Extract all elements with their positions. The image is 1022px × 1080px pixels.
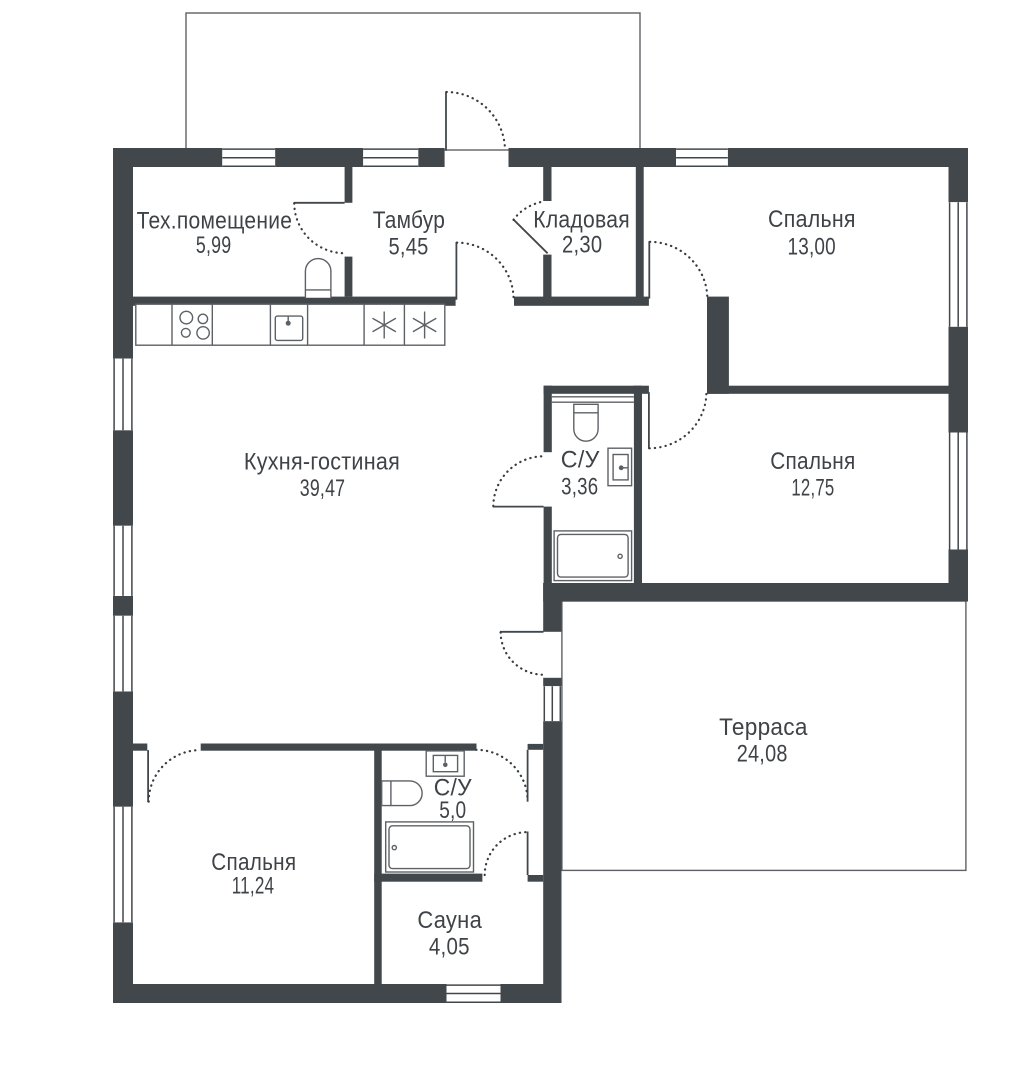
svg-text:Кладовая: Кладовая (533, 207, 630, 234)
svg-text:5,99: 5,99 (196, 232, 232, 259)
svg-text:39,47: 39,47 (300, 475, 346, 502)
svg-text:24,08: 24,08 (737, 740, 788, 767)
svg-text:Тамбур: Тамбур (373, 207, 445, 234)
svg-text:5,45: 5,45 (388, 233, 428, 260)
svg-text:Тех.помещение: Тех.помещение (137, 207, 293, 234)
svg-text:Спальня: Спальня (768, 206, 856, 233)
svg-text:С/У: С/У (561, 447, 600, 474)
svg-text:3,36: 3,36 (561, 473, 598, 500)
svg-text:2,30: 2,30 (562, 232, 602, 259)
svg-text:Кухня-гостиная: Кухня-гостиная (244, 449, 400, 476)
svg-text:12,75: 12,75 (791, 475, 834, 502)
svg-text:Сауна: Сауна (417, 907, 482, 934)
svg-text:13,00: 13,00 (787, 233, 836, 260)
svg-text:4,05: 4,05 (429, 934, 470, 961)
svg-text:Терраса: Терраса (719, 714, 808, 741)
svg-text:Спальня: Спальня (770, 448, 855, 475)
svg-text:11,24: 11,24 (232, 872, 275, 899)
svg-text:5,0: 5,0 (439, 797, 466, 824)
